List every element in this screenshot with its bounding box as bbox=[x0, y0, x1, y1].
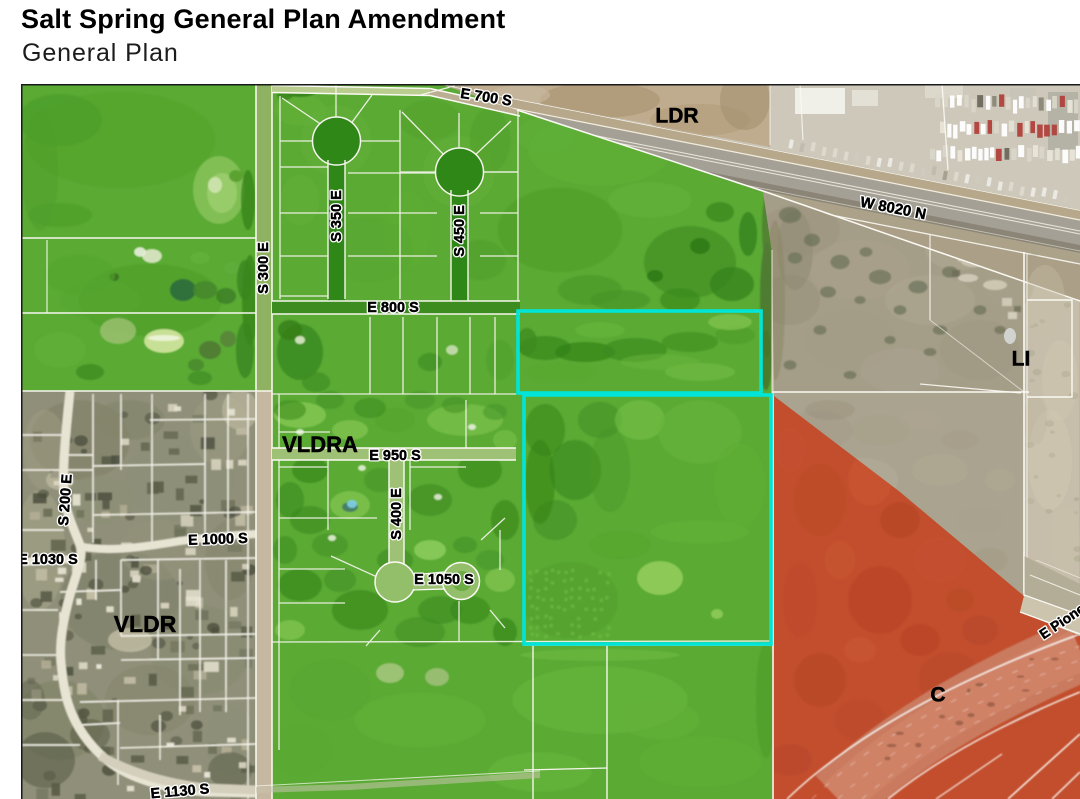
svg-text:S 450 E: S 450 E bbox=[452, 205, 468, 257]
svg-text:E 1050 S: E 1050 S bbox=[414, 572, 474, 588]
svg-text:LDR: LDR bbox=[655, 105, 698, 128]
svg-text:C: C bbox=[930, 684, 945, 707]
svg-text:LI: LI bbox=[1012, 348, 1031, 371]
svg-text:E 1000 S: E 1000 S bbox=[188, 531, 249, 549]
svg-text:E 1030 S: E 1030 S bbox=[18, 552, 78, 568]
svg-text:S 400 E: S 400 E bbox=[389, 488, 405, 540]
svg-text:S 300 E: S 300 E bbox=[256, 242, 272, 294]
svg-text:S 350 E: S 350 E bbox=[329, 190, 345, 242]
svg-text:VLDR: VLDR bbox=[114, 611, 177, 637]
svg-text:E 800 S: E 800 S bbox=[367, 300, 419, 316]
svg-text:VLDRA: VLDRA bbox=[282, 432, 358, 457]
svg-text:E 950 S: E 950 S bbox=[369, 448, 421, 464]
